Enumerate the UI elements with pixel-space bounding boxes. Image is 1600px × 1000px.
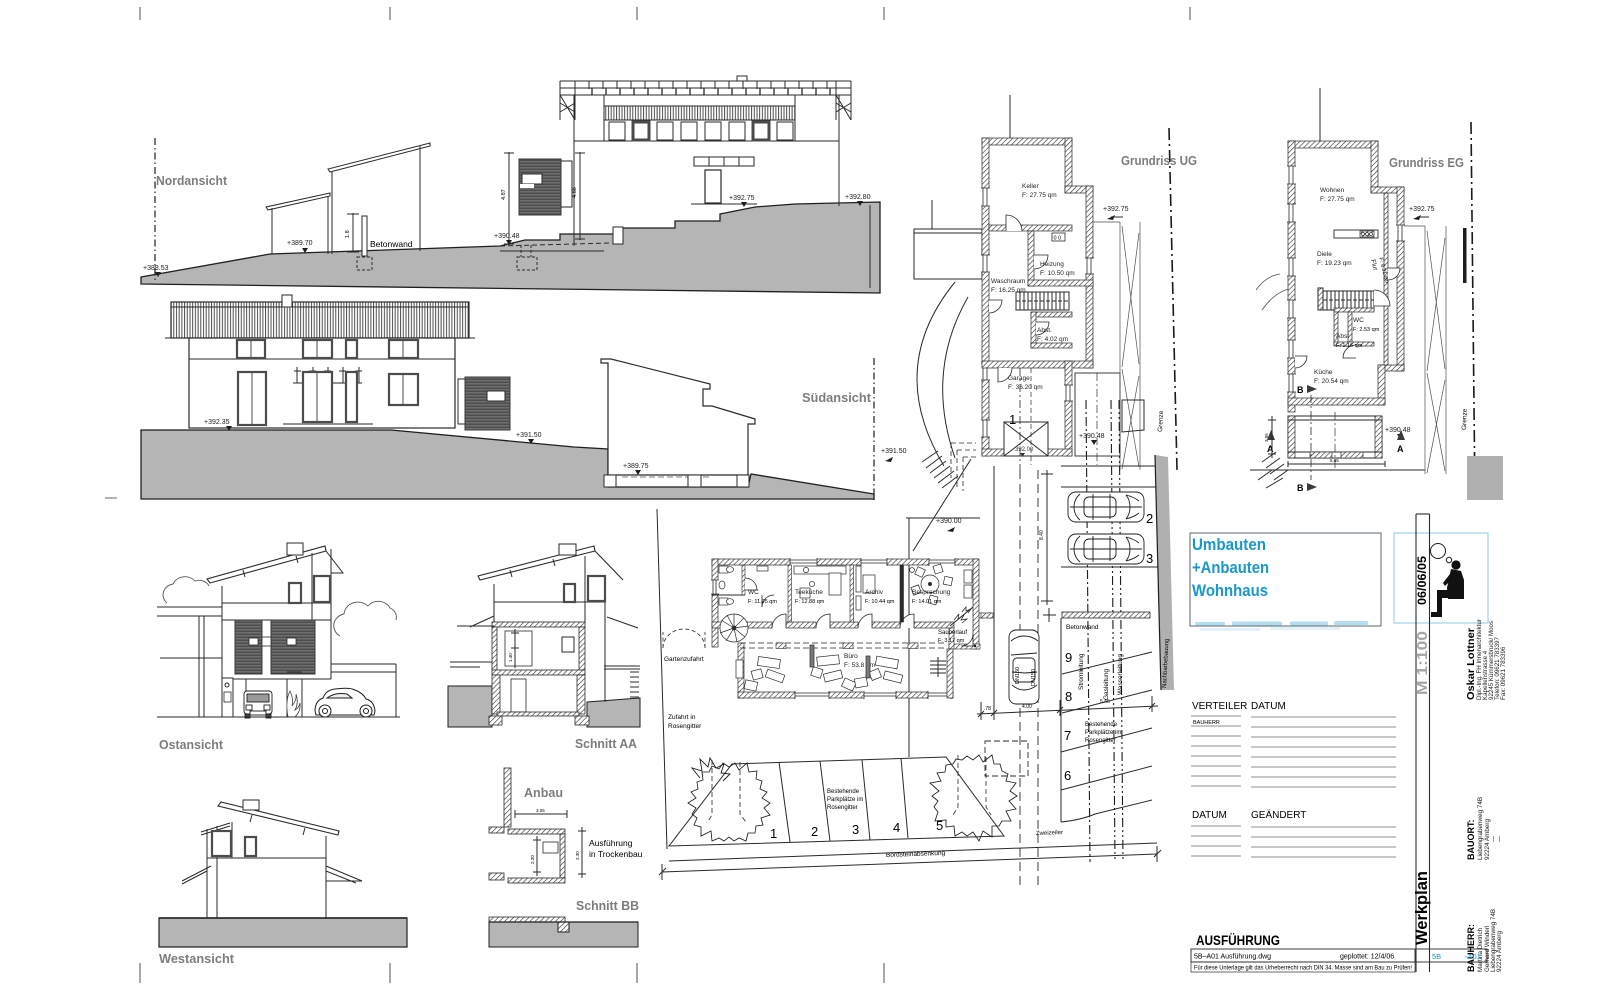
svg-text:Schnitt BB: Schnitt BB [576,898,639,913]
svg-text:Gartenzufahrt: Gartenzufahrt [664,656,704,663]
svg-text:Grenze: Grenze [1461,408,1469,430]
svg-text:Fax: 09621 783396: Fax: 09621 783396 [1500,646,1507,700]
svg-text:Besprechung: Besprechung [912,589,951,596]
svg-text:F: 10.50 qm: F: 10.50 qm [1040,270,1075,277]
svg-text:—: — [1496,835,1503,842]
svg-text:+389.75: +389.75 [623,463,649,470]
svg-text:F: 11.95 qm: F: 11.95 qm [748,599,777,605]
svg-text:Werkplan: Werkplan [1412,871,1431,945]
svg-text:DATUM: DATUM [1192,810,1227,821]
svg-text:Gasleitung: Gasleitung [1103,669,1110,700]
svg-text:Archiv: Archiv [865,589,884,596]
svg-text:BAUORT:: BAUORT: [1466,820,1476,861]
svg-text:+392.75: +392.75 [1103,206,1129,213]
svg-text:+Anbauten: +Anbauten [1192,558,1269,577]
svg-text:F: 10.44 qm: F: 10.44 qm [865,599,895,605]
svg-text:7: 7 [1064,728,1071,743]
svg-text:+391.50: +391.50 [516,432,542,439]
svg-text:Küche: Küche [1314,369,1333,376]
svg-text:Schnitt AA: Schnitt AA [575,736,638,751]
svg-text:2.30: 2.30 [575,851,580,860]
svg-text:6: 6 [1064,768,1071,783]
svg-text:Sauberlauf: Sauberlauf [938,630,967,636]
svg-text:geplottet: 12/4/06: geplottet: 12/4/06 [1340,954,1394,961]
svg-text:3.05: 3.05 [1264,433,1269,442]
svg-text:F: 53.8 qm: F: 53.8 qm [844,662,875,669]
svg-text:Betonwand: Betonwand [370,239,413,249]
svg-text:A: A [1267,444,1274,454]
svg-text:392.00: 392.00 [1015,447,1034,453]
svg-text:F: 1.16 qm: F: 1.16 qm [1336,343,1363,349]
svg-text:B: B [1297,385,1304,395]
svg-text:Parkplätze im: Parkplätze im [827,797,863,803]
svg-text:3.05: 3.05 [536,808,545,813]
svg-text:Garage: Garage [1008,375,1030,382]
svg-text:2.30: 2.30 [530,855,535,864]
svg-text:Teeküche: Teeküche [795,589,823,596]
svg-text:Liebengrabenweg 74B: Liebengrabenweg 74B [1477,797,1484,860]
svg-text:+390.48: +390.48 [1079,433,1105,440]
svg-text:Diele: Diele [1317,251,1332,258]
svg-text:Abst: Abst [1336,333,1349,340]
svg-text:+392.75: +392.75 [1409,206,1435,213]
svg-text:Wohnhaus: Wohnhaus [1192,581,1268,600]
svg-text:3: 3 [852,822,859,837]
svg-text:+390.48: +390.48 [1385,427,1411,434]
svg-text:3: 3 [1146,551,1153,566]
svg-text:F: 2.53 qm: F: 2.53 qm [1353,327,1380,333]
svg-text:+390.00: +390.00 [936,518,962,525]
svg-text:Ausführung: Ausführung [589,838,633,848]
svg-text:Rosengitter: Rosengitter [1085,738,1116,744]
svg-text:F: 14.01 qm: F: 14.01 qm [912,599,942,605]
svg-text:8: 8 [1065,689,1072,704]
svg-text:1: 1 [770,826,777,841]
svg-text:.78: .78 [984,706,991,712]
svg-text:F: 16.25 qm: F: 16.25 qm [991,287,1026,294]
svg-text:Waschraum: Waschraum [991,278,1025,285]
svg-text:Wohnen: Wohnen [1320,187,1344,194]
svg-text:Südansicht: Südansicht [802,390,872,405]
svg-text:WC: WC [748,589,759,596]
svg-text:AUSFÜHRUNG: AUSFÜHRUNG [1196,932,1280,948]
svg-text:Umbauten: Umbauten [1192,535,1266,554]
svg-text:+388.53: +388.53 [143,265,169,272]
svg-text:+389.70: +389.70 [287,240,313,247]
svg-text:+392.75: +392.75 [729,195,755,202]
svg-text:4.88: 4.88 [572,187,578,198]
svg-text:VERTEILER: VERTEILER [1192,701,1247,712]
svg-text:Anbau: Anbau [524,785,563,800]
svg-text:in Trockenbau: in Trockenbau [589,849,643,859]
svg-text:Für diese Unterlage gilt das U: Für diese Unterlage gilt das Urheberrech… [1194,965,1412,972]
svg-text:F: 19.23 qm: F: 19.23 qm [1317,260,1352,267]
svg-text:F: 27.75 qm: F: 27.75 qm [1320,196,1355,203]
svg-text:2: 2 [1146,511,1153,526]
svg-text:9: 9 [1065,650,1072,665]
svg-text:+391.50: +391.50 [881,448,907,455]
svg-text:Grundriss UG: Grundriss UG [1121,153,1197,168]
svg-text:F: 27.75 qm: F: 27.75 qm [1022,192,1057,199]
svg-text:GEÄNDERT: GEÄNDERT [1251,809,1306,821]
svg-text:Rosengitter: Rosengitter [827,805,858,811]
svg-text:Rosengitter: Rosengitter [668,723,702,730]
svg-text:+390.48: +390.48 [494,233,520,240]
svg-text:B: B [1297,483,1304,493]
svg-text:M 1:100: M 1:100 [1414,631,1431,695]
svg-text:WC: WC [1353,317,1364,324]
svg-text:2: 2 [811,824,818,839]
svg-text:Zufahrt in: Zufahrt in [668,714,696,721]
svg-text:Büro: Büro [844,653,858,660]
svg-text:5.45: 5.45 [1100,699,1110,705]
svg-text:4: 4 [893,820,900,835]
svg-text:Betonwand: Betonwand [1066,624,1099,631]
svg-text:5B–A01 Ausführung.dwg: 5B–A01 Ausführung.dwg [1194,954,1271,961]
svg-text:4.87: 4.87 [501,189,507,200]
svg-text:Bestehende: Bestehende [1085,722,1118,728]
svg-text:Ostansicht: Ostansicht [159,737,224,752]
svg-text:Heizung: Heizung [1040,261,1064,268]
svg-text:Bestehende: Bestehende [827,789,860,795]
svg-text:F: 36.20 qm: F: 36.20 qm [1008,384,1043,391]
svg-text:5.85: 5.85 [1330,458,1339,463]
svg-text:Grundriss EG: Grundriss EG [1389,155,1464,170]
svg-text:Stromleitung: Stromleitung [1078,653,1085,690]
svg-text:4.00: 4.00 [1022,704,1032,710]
svg-text:Martina Dietrich: Martina Dietrich [1477,927,1484,972]
svg-text:-A01: -A01 [1465,952,1481,961]
svg-text:5B: 5B [1432,952,1441,961]
svg-text:0 0: 0 0 [1054,236,1062,242]
svg-text:Keller: Keller [1022,183,1039,190]
svg-text:DN150: DN150 [1015,667,1021,684]
svg-text:Wasserleitung: Wasserleitung [1117,654,1124,695]
svg-text:+392.35: +392.35 [204,419,230,426]
svg-text:BAUHERR:: BAUHERR: [1466,924,1476,972]
svg-text:1.8: 1.8 [345,230,351,238]
svg-text:92224 Amberg: 92224 Amberg [1496,931,1503,972]
svg-text:06/06/05: 06/06/05 [1415,556,1429,605]
svg-text:Grenze: Grenze [1157,410,1165,432]
svg-text:1: 1 [1009,412,1016,427]
svg-text:1.40: 1.40 [508,653,513,662]
svg-text:F: 4.02 qm: F: 4.02 qm [1037,336,1068,343]
svg-text:Nordansicht: Nordansicht [156,173,228,188]
svg-text:Abst.: Abst. [1037,327,1052,334]
svg-text:8.40: 8.40 [1039,530,1045,540]
svg-text:Parkplätze im: Parkplätze im [1085,730,1121,736]
svg-text:A: A [1397,444,1404,454]
svg-text:Westansicht: Westansicht [159,951,235,966]
svg-text:F: 12.88 qm: F: 12.88 qm [795,599,825,605]
svg-text:F: 20.54 qm: F: 20.54 qm [1314,378,1349,385]
svg-text:Zweizeiler: Zweizeiler [1036,830,1063,837]
svg-text:BAUHERR: BAUHERR [1193,720,1220,726]
svg-text:+392.80: +392.80 [845,194,871,201]
svg-text:DN150: DN150 [1031,669,1037,686]
svg-text:DATUM: DATUM [1251,701,1286,712]
